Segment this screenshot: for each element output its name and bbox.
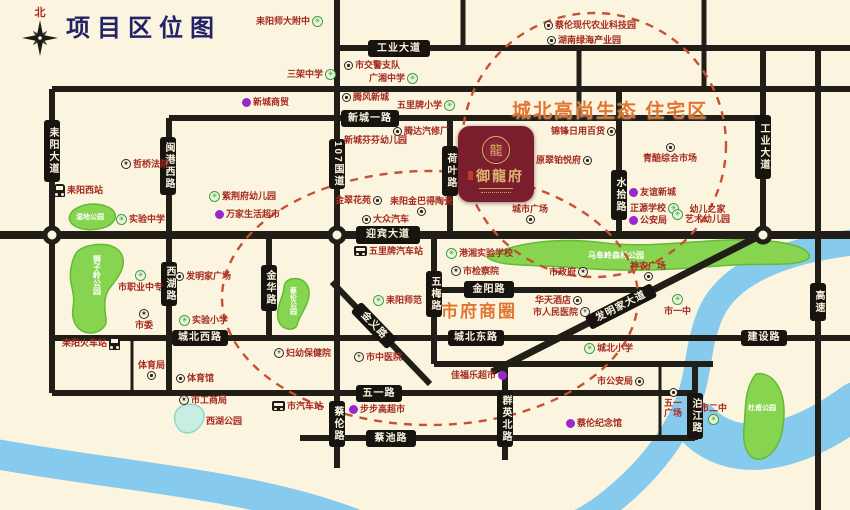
poi-label: 实验中学 bbox=[129, 214, 165, 224]
map-poi: 湖南绿海产业园 bbox=[547, 35, 621, 45]
map-poi: 耒阳火车站 bbox=[62, 337, 120, 350]
poi-label: 五一 广场 bbox=[664, 398, 682, 419]
map-poi: ✳城北小学 bbox=[584, 343, 633, 354]
road-label: 金华路 bbox=[261, 265, 277, 311]
poi-label: 耒阳金巴得陶瓷 bbox=[390, 196, 453, 206]
zone-label-residential: 城北高尚生态 住宅区 bbox=[512, 96, 708, 123]
page-title: 项目区位图 bbox=[66, 8, 221, 43]
tagline-rule bbox=[481, 192, 511, 193]
map-poi: ★市检察院 bbox=[451, 266, 499, 276]
ring-icon bbox=[669, 388, 678, 397]
roundabout bbox=[756, 228, 770, 242]
school-icon: ✳ bbox=[672, 209, 683, 220]
poi-label: 华天酒店 bbox=[535, 295, 571, 305]
map-poi: ✳耒阳师范 bbox=[373, 295, 422, 306]
poi-label: 蔡伦纪念馆 bbox=[577, 418, 622, 428]
map-poi: 市汽车站 bbox=[272, 401, 323, 411]
road-label: 群英北路 bbox=[497, 391, 513, 447]
map-poi: 市二中✳ bbox=[700, 403, 727, 425]
road-label: 五梅路 bbox=[426, 271, 442, 317]
poi-label: 友谊新城 bbox=[640, 187, 676, 197]
poi-label: 五里牌小学 bbox=[397, 100, 442, 110]
poi-label: 幼儿之家 艺术幼儿园 bbox=[685, 204, 730, 225]
park-label: 湿地公园 bbox=[76, 212, 104, 221]
project-name-text: 御龍府 bbox=[476, 166, 524, 186]
ring-icon bbox=[526, 215, 535, 224]
poi-label: 腾风新城 bbox=[353, 92, 389, 102]
poi-label: 耒阳师范 bbox=[386, 295, 422, 305]
bus-icon bbox=[354, 246, 367, 256]
poi-label: 体育馆 bbox=[187, 373, 214, 383]
ring-icon bbox=[344, 61, 353, 70]
map-poi: 发明家广场 bbox=[175, 271, 231, 281]
map-poi: 华天酒店 bbox=[535, 295, 582, 305]
star-icon: ★ bbox=[578, 267, 588, 277]
red-seal-icon bbox=[468, 171, 473, 180]
map-poi: +妇幼保健院 bbox=[274, 348, 331, 358]
poi-label: 蔡伦现代农业科技园 bbox=[555, 20, 636, 30]
project-marker: 龍 御龍府 bbox=[458, 126, 534, 202]
train-icon bbox=[109, 337, 120, 350]
poi-label: 广湘中学 bbox=[369, 73, 405, 83]
map-poi: ✳紫荆府幼儿园 bbox=[209, 191, 276, 202]
project-location-map: 湿地公园狮子岭公园蔡伦公园马阜岭森林公园杜甫公园 北 项目区位图 城北高尚生态 … bbox=[0, 0, 850, 510]
poi-label: 万家生活超市 bbox=[226, 209, 280, 219]
poi-label: 实验小学 bbox=[192, 315, 228, 325]
poi-label: 大众汽车 bbox=[373, 214, 409, 224]
dot-icon bbox=[629, 188, 638, 197]
star-icon: ★ bbox=[139, 309, 149, 319]
map-poi: 新城商贸 bbox=[242, 97, 289, 107]
poi-label: 五里牌汽车站 bbox=[369, 246, 423, 256]
poi-label: 三架中学 bbox=[287, 69, 323, 79]
school-icon: ✳ bbox=[672, 294, 683, 305]
map-poi: ✳港湘实验学校 bbox=[446, 248, 513, 259]
map-poi: 友谊新城 bbox=[629, 187, 676, 197]
poi-label: 原翠铂悦府 bbox=[536, 155, 581, 165]
dot-icon bbox=[498, 371, 507, 380]
poi-label: 妇幼保健院 bbox=[286, 348, 331, 358]
dot-icon bbox=[566, 419, 575, 428]
poi-label: 耒阳师大附中 bbox=[256, 16, 310, 26]
map-poi: 市交警支队 bbox=[344, 60, 400, 70]
map-poi: 青醅综合市场 bbox=[643, 143, 697, 163]
poi-label: 公安局 bbox=[640, 215, 667, 225]
bus-icon bbox=[272, 401, 285, 411]
poi-label: 市中医院 bbox=[366, 352, 402, 362]
map-poi: 大众汽车 bbox=[362, 214, 409, 224]
map-poi: 五一 广场 bbox=[664, 388, 682, 419]
ring-icon bbox=[342, 93, 351, 102]
road-label: 迎宾大道 bbox=[356, 226, 420, 244]
map-poi: 市人民医院+ bbox=[533, 307, 590, 317]
compass-star-icon bbox=[22, 20, 58, 56]
road-label: 高速 bbox=[810, 283, 826, 321]
road-label: 蔡伦路 bbox=[329, 401, 345, 447]
poi-label: 港湘实验学校 bbox=[459, 248, 513, 258]
ring-icon bbox=[417, 207, 426, 216]
compass-north-label: 北 bbox=[18, 4, 62, 20]
map-poi: +市中医院 bbox=[354, 352, 402, 362]
school-icon: ✳ bbox=[446, 248, 457, 259]
school-icon: ✳ bbox=[708, 414, 719, 425]
map-poi: 五里牌小学✳ bbox=[397, 100, 455, 111]
ring-icon bbox=[635, 377, 644, 386]
divider bbox=[479, 188, 513, 189]
map-poi: 新城芬芬幼儿园 bbox=[344, 135, 407, 145]
poi-label: 市政府 bbox=[549, 267, 576, 277]
road-label: 蔡池路 bbox=[366, 430, 416, 447]
ring-icon bbox=[573, 296, 582, 305]
school-icon: ✳ bbox=[325, 69, 336, 80]
park-label: 狮子岭公园 bbox=[93, 254, 102, 296]
poi-label: 锦锋日用百货 bbox=[551, 126, 605, 136]
map-poi: 体育局 bbox=[138, 360, 165, 380]
road-label: 城北东路 bbox=[448, 330, 504, 346]
ring-icon bbox=[544, 21, 553, 30]
dot-icon bbox=[629, 216, 638, 225]
west-lake bbox=[175, 404, 205, 433]
poi-label: 市委 bbox=[135, 320, 153, 330]
road-label: 荷叶路 bbox=[442, 146, 458, 196]
road-label: 水拾路 bbox=[611, 170, 627, 220]
road-label: 107国道 bbox=[329, 139, 345, 189]
school-icon: ✳ bbox=[407, 73, 418, 84]
poi-label: 步步高超市 bbox=[360, 404, 405, 414]
school-icon: ✳ bbox=[373, 295, 384, 306]
park-label: 马阜岭森林公园 bbox=[588, 250, 644, 260]
poi-label: 新城商贸 bbox=[253, 97, 289, 107]
star-icon: ★ bbox=[179, 395, 189, 405]
map-poi: 三架中学✳ bbox=[287, 69, 336, 80]
poi-label: 金翠花苑 bbox=[335, 195, 371, 205]
school-icon: ✳ bbox=[209, 191, 220, 202]
road-label: 新城一路 bbox=[341, 110, 399, 127]
map-poi: 步步高超市 bbox=[349, 404, 405, 414]
dot-icon bbox=[242, 98, 251, 107]
poi-label: 正源学校 bbox=[630, 203, 666, 213]
poi-label: 耒阳火车站 bbox=[62, 338, 107, 348]
ring-icon bbox=[362, 215, 371, 224]
poi-label: 市检察院 bbox=[463, 266, 499, 276]
poi-label: 市公安局 bbox=[597, 376, 633, 386]
cross-icon: + bbox=[354, 352, 364, 362]
poi-label: 耒阳西站 bbox=[67, 185, 103, 195]
ring-icon bbox=[373, 196, 382, 205]
map-poi: 城市广场 bbox=[512, 204, 548, 224]
poi-label: 新城芬芬幼儿园 bbox=[344, 135, 407, 145]
project-name: 御龍府 bbox=[468, 166, 524, 186]
dot-icon bbox=[349, 405, 358, 414]
map-poi: 市公安局 bbox=[597, 376, 644, 386]
star-icon: ★ bbox=[121, 159, 131, 169]
poi-label: 湖南绿海产业园 bbox=[558, 35, 621, 45]
poi-label: 腾达汽修厂 bbox=[404, 126, 449, 136]
poi-label: 青醅综合市场 bbox=[643, 153, 697, 163]
school-icon: ✳ bbox=[135, 270, 146, 281]
school-icon: ✳ bbox=[179, 315, 190, 326]
school-icon: ✳ bbox=[444, 100, 455, 111]
map-poi: 神农广场 bbox=[630, 261, 666, 281]
map-poi: 西湖公园 bbox=[206, 416, 242, 426]
ring-icon bbox=[666, 143, 675, 152]
poi-label: 城北小学 bbox=[597, 343, 633, 353]
poi-label: 市二中 bbox=[700, 403, 727, 413]
map-canvas: 湿地公园狮子岭公园蔡伦公园马阜岭森林公园杜甫公园 bbox=[0, 0, 850, 510]
map-poi: ✳实验小学 bbox=[179, 315, 228, 326]
map-poi: 体育馆 bbox=[176, 373, 214, 383]
dot-icon bbox=[215, 210, 224, 219]
zone-label-business: 市府商圈 bbox=[441, 297, 517, 322]
river bbox=[0, 452, 385, 510]
poi-label: 西湖公园 bbox=[206, 416, 242, 426]
map-poi: ★市工商局 bbox=[179, 395, 227, 405]
map-poi: 耒阳师大附中✳ bbox=[256, 16, 323, 27]
road-label: 城北西路 bbox=[172, 330, 228, 346]
map-poi: 原翠铂悦府 bbox=[536, 155, 592, 165]
map-poi: ★哲桥法院 bbox=[121, 159, 169, 169]
map-poi: 五里牌汽车站 bbox=[354, 246, 423, 256]
road-label: 工业大道 bbox=[368, 40, 430, 57]
compass: 北 bbox=[18, 4, 62, 61]
map-poi: 蔡伦纪念馆 bbox=[566, 418, 622, 428]
map-poi: 佳福乐超市 bbox=[451, 370, 507, 380]
dragon-seal-icon: 龍 bbox=[482, 136, 510, 164]
map-poi: 公安局 bbox=[629, 215, 667, 225]
map-poi: 市政府★ bbox=[549, 267, 588, 277]
poi-label: 紫荆府幼儿园 bbox=[222, 191, 276, 201]
poi-label: 市人民医院 bbox=[533, 307, 578, 317]
ring-icon bbox=[583, 156, 592, 165]
map-poi: 耒阳西站 bbox=[54, 184, 103, 197]
poi-label: 市汽车站 bbox=[287, 401, 323, 411]
road-label: 工业大道 bbox=[755, 115, 771, 179]
map-poi: 锦锋日用百货 bbox=[551, 126, 616, 136]
map-poi: 金翠花苑 bbox=[335, 195, 382, 205]
road-label: 耒阳大道 bbox=[44, 120, 60, 182]
ring-icon bbox=[607, 127, 616, 136]
map-poi: ✳实验中学 bbox=[116, 214, 165, 225]
map-poi: ✳市一中 bbox=[664, 294, 691, 316]
road-label: 五一路 bbox=[356, 385, 402, 402]
school-icon: ✳ bbox=[116, 214, 127, 225]
map-poi: 腾风新城 bbox=[342, 92, 389, 102]
ring-icon bbox=[147, 371, 156, 380]
poi-label: 市一中 bbox=[664, 306, 691, 316]
map-poi: 蔡伦现代农业科技园 bbox=[544, 20, 636, 30]
map-poi: 万家生活超市 bbox=[215, 209, 280, 219]
school-icon: ✳ bbox=[584, 343, 595, 354]
map-poi: ✳幼儿之家 艺术幼儿园 bbox=[672, 204, 730, 225]
star-icon: ★ bbox=[451, 266, 461, 276]
cross-icon: + bbox=[580, 307, 590, 317]
road-label: 金阳路 bbox=[464, 281, 514, 298]
poi-label: 城市广场 bbox=[512, 204, 548, 214]
poi-label: 神农广场 bbox=[630, 261, 666, 271]
park-label: 杜甫公园 bbox=[748, 403, 776, 412]
ring-icon bbox=[176, 374, 185, 383]
road-label: 建设路 bbox=[741, 330, 787, 346]
train-icon bbox=[54, 184, 65, 197]
school-icon: ✳ bbox=[312, 16, 323, 27]
roundabout bbox=[330, 228, 344, 242]
poi-label: 哲桥法院 bbox=[133, 159, 169, 169]
ring-icon bbox=[175, 272, 184, 281]
cross-icon: + bbox=[274, 348, 284, 358]
poi-label: 市工商局 bbox=[191, 395, 227, 405]
poi-label: 市职业中专 bbox=[118, 282, 163, 292]
poi-label: 体育局 bbox=[138, 360, 165, 370]
map-poi: 广湘中学✳ bbox=[369, 73, 418, 84]
road-label: 西湖路 bbox=[161, 262, 177, 306]
ring-icon bbox=[644, 272, 653, 281]
poi-label: 市交警支队 bbox=[355, 60, 400, 70]
roundabout bbox=[45, 228, 59, 242]
map-poi: ✳市职业中专 bbox=[118, 270, 163, 292]
poi-label: 发明家广场 bbox=[186, 271, 231, 281]
poi-label: 佳福乐超市 bbox=[451, 370, 496, 380]
ring-icon bbox=[547, 36, 556, 45]
map-poi: ★市委 bbox=[135, 309, 153, 330]
